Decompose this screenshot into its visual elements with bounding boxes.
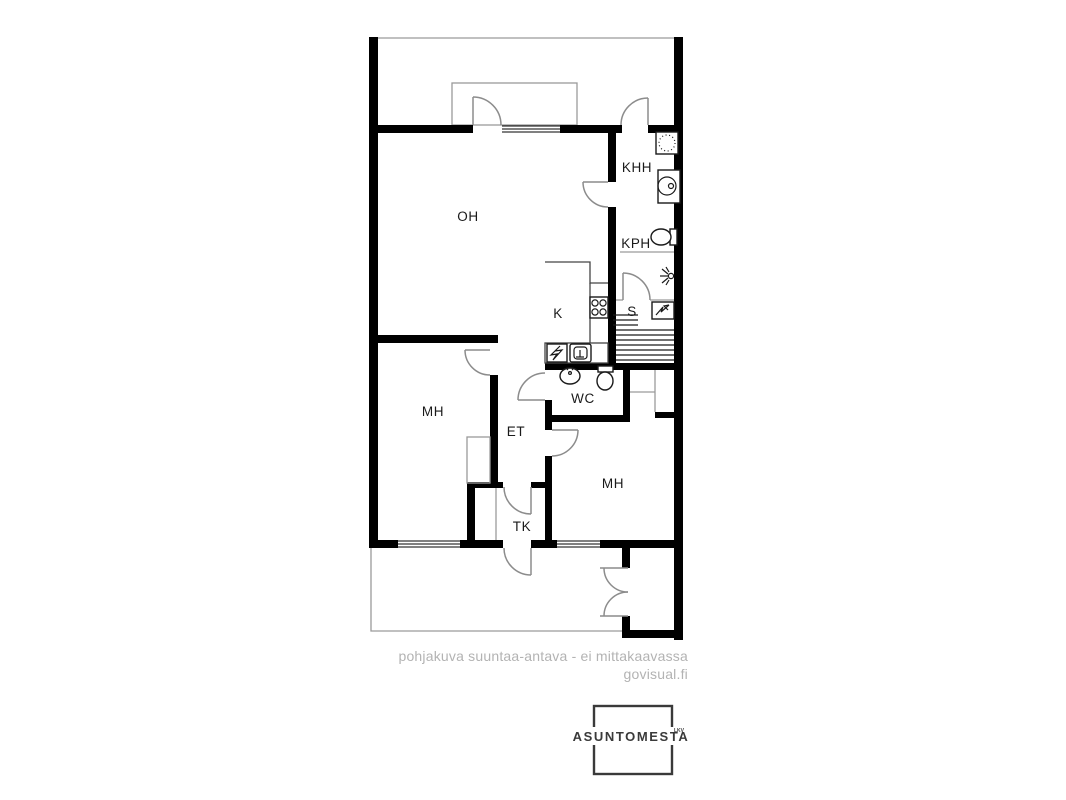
- room-label-oh: OH: [457, 209, 478, 224]
- window-icon: [557, 541, 600, 547]
- door-swing-icon: [465, 350, 490, 375]
- brand-logo: ASUNTOMESTA LKV: [573, 706, 690, 774]
- room-label-k: K: [553, 306, 563, 321]
- walls: [369, 37, 683, 640]
- logo-brand-text: ASUNTOMESTA: [573, 729, 690, 744]
- electrical-panel-icon: [547, 344, 567, 362]
- door-swing-icon: [583, 182, 608, 207]
- shower-icon: [660, 267, 674, 285]
- kitchen-sink-icon: [570, 344, 591, 362]
- toilet-icon: [651, 229, 677, 245]
- floorplan-page: OH KHH KPH K S WC ET MH TK MH pohjakuva …: [0, 0, 1066, 800]
- room-label-wc: WC: [571, 391, 595, 406]
- disclaimer-text: pohjakuva suuntaa-antava - ei mittakaava…: [398, 648, 688, 664]
- room-label-mh-left: MH: [422, 404, 444, 419]
- door-swing-icon: [473, 97, 501, 125]
- window-icon: [502, 126, 560, 132]
- website-text: govisual.fi: [624, 666, 688, 682]
- window-icon: [398, 541, 460, 547]
- door-swing-icon: [623, 273, 650, 300]
- kitchen-stove-icon: [590, 297, 608, 318]
- room-label-et: ET: [507, 424, 525, 439]
- room-label-khh: KHH: [622, 160, 652, 175]
- floor-plan: OH KHH KPH K S WC ET MH TK MH pohjakuva …: [0, 0, 1066, 800]
- door-swing-icon: [518, 373, 545, 400]
- room-label-tk: TK: [513, 519, 531, 534]
- floor-drain-icon: [656, 132, 678, 154]
- porch-outline: [371, 548, 622, 631]
- door-swing-icon: [621, 98, 648, 125]
- door-swing-icon: [504, 548, 531, 575]
- double-door-swing-icon: [600, 568, 628, 616]
- wc-sink-icon: [560, 368, 580, 384]
- room-labels: OH KHH KPH K S WC ET MH TK MH: [422, 160, 652, 534]
- door-swing-icon: [552, 430, 578, 456]
- terrace-outline: [369, 38, 683, 125]
- wc-toilet-icon: [597, 366, 613, 390]
- room-label-kph: KPH: [621, 236, 651, 251]
- door-swing-icon: [504, 487, 531, 514]
- washing-machine-icon: [658, 170, 680, 203]
- sauna-benches-icon: [613, 315, 674, 360]
- room-label-mh-right: MH: [602, 476, 624, 491]
- sauna-stove-icon: [652, 302, 674, 319]
- room-label-s: S: [627, 304, 637, 319]
- footer: pohjakuva suuntaa-antava - ei mittakaava…: [398, 648, 688, 682]
- logo-suffix-text: LKV: [674, 728, 685, 734]
